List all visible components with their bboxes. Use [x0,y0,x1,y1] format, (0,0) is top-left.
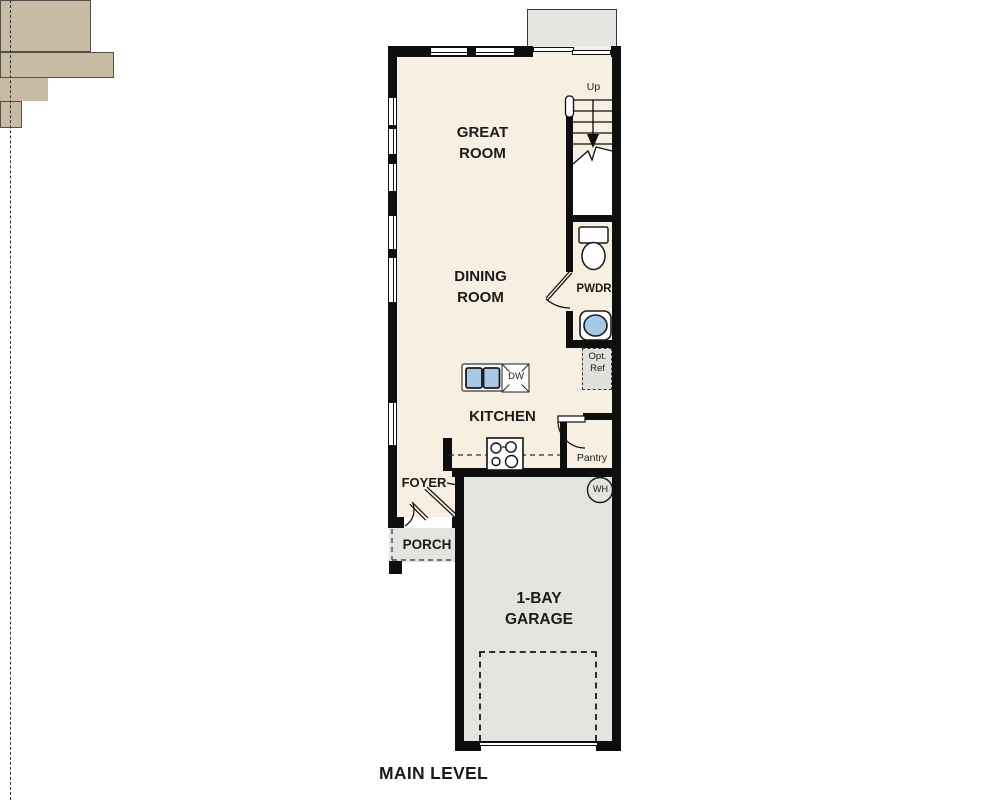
dishwasher-label: DW [504,371,528,382]
dining-room-label: DINING ROOM [428,266,533,308]
wall-garage-bottom-right [596,741,621,751]
pantry-shelf [0,78,48,101]
porch-label: PORCH [399,537,455,552]
wall-pantry-top-stub [583,413,612,420]
wall-stair-left [566,97,573,222]
stairs-up-label: Up [581,81,606,93]
great-room-label: GREAT ROOM [430,122,535,164]
porch-post [389,561,402,574]
foyer-label: FOYER [400,475,448,490]
wall-stair-bottom [566,215,616,222]
wall-pwdr-bottom [566,340,616,348]
pantry-label: Pantry [572,452,612,464]
optional-ref-label: Opt. Ref [583,351,612,375]
window-left-1 [388,97,397,126]
window-left-4 [388,215,397,250]
ref-cabinet [0,101,22,128]
wall-right [612,46,621,751]
window-left-2 [388,128,397,155]
deck-pad [527,9,617,49]
wall-foyer-porch-right [452,517,464,528]
wall-counter-left-stub [443,438,452,471]
garage-door [480,741,597,746]
sliding-door-panel-1 [533,47,574,52]
garage-label: 1-BAY GARAGE [484,588,594,630]
ref-cabinet-divider [10,0,11,800]
wall-garage-top [452,468,621,477]
window-top-1 [430,47,468,56]
kitchen-label: KITCHEN [440,408,565,425]
kitchen-counter [0,52,114,78]
wall-pwdr-left-upper [566,222,573,272]
sliding-door-panel-2 [572,50,611,55]
window-left-6 [388,402,397,446]
kitchen-island [0,0,91,52]
floor-plan-canvas: GREAT ROOM DINING ROOM KITCHEN FOYER POR… [0,0,1000,800]
water-heater-label: WH [588,484,613,494]
wall-garage-left [455,472,464,751]
window-left-5 [388,257,397,303]
window-left-3 [388,163,397,192]
window-top-2 [475,47,515,56]
wall-garage-bottom-left [455,741,481,751]
garage-parking-outline [479,651,597,741]
powder-room-label: PWDR [574,283,614,295]
wall-foyer-porch-left [388,517,404,528]
plan-title: MAIN LEVEL [379,763,499,784]
